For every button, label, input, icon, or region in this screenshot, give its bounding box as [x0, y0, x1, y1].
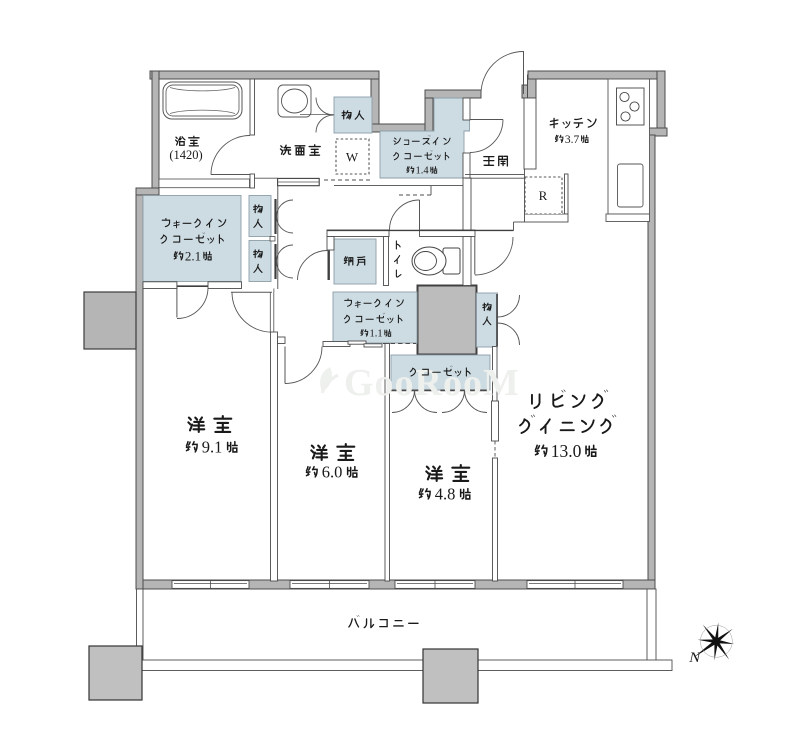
svg-text:9.1: 9.1	[202, 438, 223, 457]
svg-text:R: R	[539, 188, 548, 203]
svg-text:GooRooM: GooRooM	[344, 362, 520, 404]
svg-text:1.1: 1.1	[369, 329, 382, 340]
svg-text:4.8: 4.8	[435, 485, 456, 504]
svg-text:13.0: 13.0	[551, 441, 582, 461]
svg-text:3.7: 3.7	[565, 134, 580, 146]
svg-text:(1420): (1420)	[169, 148, 202, 162]
svg-text:1.4: 1.4	[415, 166, 429, 177]
svg-text:W: W	[346, 150, 359, 165]
svg-text:6.0: 6.0	[322, 463, 343, 482]
svg-text:2.1: 2.1	[185, 248, 201, 263]
svg-text:N: N	[688, 650, 702, 666]
